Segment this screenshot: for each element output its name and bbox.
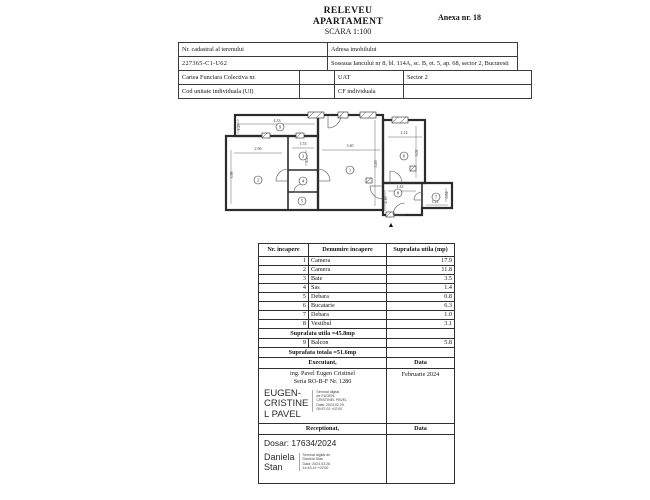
executant-data-label: Data (387, 358, 455, 369)
total-row: Suprafata totala =51.6mp (259, 348, 455, 358)
dimension-label: 4.33 (274, 118, 281, 123)
dimension-label: 3.98 (229, 172, 234, 179)
dimension-label: 1.29 (236, 124, 241, 131)
table-row: 2Camera11.8 (259, 266, 455, 275)
dimension-label: 1.53 (300, 141, 307, 146)
total-label: Suprafata totala =51.6mp (259, 348, 387, 358)
table-row: 1Camera17.9 (259, 257, 455, 266)
nr-cadastral-value: 227365-C1-U62 (179, 57, 328, 71)
floorplan-windows (262, 112, 416, 217)
document-page: RELEVEU APARTAMENT SCARA 1:100 Anexa nr.… (0, 0, 650, 500)
balcony-nr: 9 (259, 339, 309, 348)
dimension-label: 3.02 (414, 150, 419, 157)
cod-ui-value (300, 85, 335, 99)
total-empty (387, 348, 455, 358)
cf-individuala-label: CF individuala (335, 85, 404, 99)
carte-funciara-value (300, 71, 335, 85)
executant-series: Seria RO-B-F Nr. 1280 (261, 378, 384, 386)
dosar-number: Dosar: 17634/2024 (264, 439, 384, 449)
adresa-value: Soseaua Iancului nr 8, bl. 114A, sc. B, … (328, 57, 518, 71)
receptionat-header-row: Receptionat, Data (259, 424, 455, 435)
title-line-1: RELEVEU (250, 6, 446, 17)
uat-label: UAT (335, 71, 404, 85)
dimension-label: 2.16 (383, 197, 388, 204)
table-row: 6Bucatarie6.3 (259, 302, 455, 311)
dimension-label: 5.26 (373, 161, 378, 168)
dimension-label: 2.96 (255, 146, 262, 151)
cadastral-info-table: Nr. cadastral al terenului Adresa imobil… (178, 42, 518, 71)
table-row: 5Debara0.8 (259, 293, 455, 302)
annex-label: Anexa nr. 18 (438, 13, 481, 22)
executant-cell: ing. Pavel Eugen Cristinel Seria RO-B-F … (259, 369, 387, 424)
receptionat-date (387, 435, 455, 484)
executant-name: ing. Pavel Eugen Cristinel (261, 370, 384, 378)
table-header-row: Nr. incapere Denumire incapere Suprafata… (259, 244, 455, 257)
table-row: Cod unitate individuala (UI) CF individu… (179, 85, 532, 99)
room-rows: 1Camera17.92Camera11.83Baie3.54Sas1.45De… (259, 257, 455, 329)
signature-detail-text: Semnat digital de EUGEN- CRISTINEL PAVEL… (312, 390, 347, 412)
table-row: 3Baie3.5 (259, 275, 455, 284)
balcony-name: Balcon (309, 339, 387, 348)
adresa-label: Adresa imobilului (328, 43, 518, 57)
entrance-arrow: ▲ (388, 221, 395, 229)
cadastral-info-table-2: Cartea Funciara Colectiva nr. UAT Sector… (178, 70, 532, 99)
receptionat-content-row: Dosar: 17634/2024 Daniela Stan Semnat di… (259, 435, 455, 484)
table-row: 8Vestibul3.1 (259, 320, 455, 329)
dimension-label: 1.43 (397, 184, 404, 189)
receptionat-cell: Dosar: 17634/2024 Daniela Stan Semnat di… (259, 435, 387, 484)
signature-name-text: Daniela Stan (261, 452, 295, 472)
scale-label: SCARA 1:100 (250, 28, 446, 37)
cod-ui-label: Cod unitate individuala (UI) (179, 85, 300, 99)
executant-signature: EUGEN- CRISTINE L PAVEL Semnat digital d… (261, 389, 384, 421)
table-row: 7Debara1.0 (259, 311, 455, 320)
table-row: Nr. cadastral al terenului Adresa imobil… (179, 43, 518, 57)
room-area-table: Nr. incapere Denumire incapere Suprafata… (258, 243, 455, 484)
dimension-label: 2.14 (401, 130, 408, 135)
floorplan-drawing: 4.331.292.963.981.532.293.405.262.143.02… (220, 108, 464, 238)
dimension-label: 3.40 (347, 143, 354, 148)
subtotal-row: Suprafata utila =45.8mp (259, 329, 455, 339)
signature-name-text: EUGEN- CRISTINE L PAVEL (261, 389, 308, 421)
receptionat-data-label: Data (387, 424, 455, 435)
title-line-2: APARTAMENT (250, 17, 446, 28)
balcony-row: 9 Balcon 5.8 (259, 339, 455, 348)
document-title: RELEVEU APARTAMENT SCARA 1:100 (250, 6, 446, 37)
table-row: Cartea Funciara Colectiva nr. UAT Sector… (179, 71, 532, 85)
subtotal-label: Suprafata utila =45.8mp (259, 329, 387, 339)
nr-cadastral-label: Nr. cadastral al terenului (179, 43, 328, 57)
executant-content-row: ing. Pavel Eugen Cristinel Seria RO-B-F … (259, 369, 455, 424)
uat-value: Sector 2 (404, 71, 532, 85)
header-denumire: Denumire incapere (309, 244, 387, 257)
dimension-label: 0.84 (444, 192, 449, 199)
executant-label: Executant, (259, 358, 387, 369)
receptionat-label: Receptionat, (259, 424, 387, 435)
table-row: 227365-C1-U62 Soseaua Iancului nr 8, bl.… (179, 57, 518, 71)
table-row: 4Sas1.4 (259, 284, 455, 293)
header-nr-incapere: Nr. incapere (259, 244, 309, 257)
carte-funciara-label: Cartea Funciara Colectiva nr. (179, 71, 300, 85)
header-suprafata: Suprafata utila (mp) (387, 244, 455, 257)
signature-detail-text: Semnat digital de Daniela Stan Data: 202… (299, 453, 331, 471)
executant-date: Februarie 2024 (387, 369, 455, 424)
executant-header-row: Executant, Data (259, 358, 455, 369)
subtotal-empty (387, 329, 455, 339)
balcony-area: 5.8 (387, 339, 455, 348)
cf-individuala-value (404, 85, 532, 99)
receptionat-signature: Daniela Stan Semnat digital de Daniela S… (261, 452, 384, 472)
